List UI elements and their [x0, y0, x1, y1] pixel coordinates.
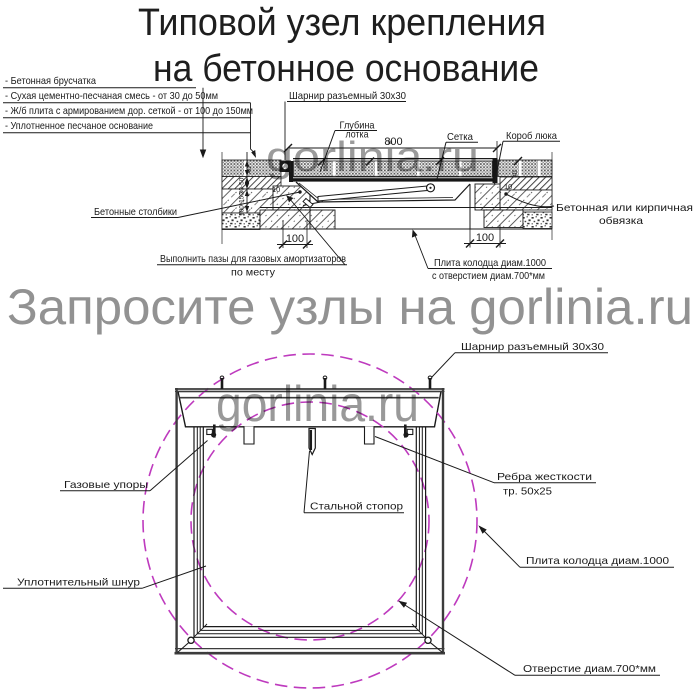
svg-text:Запросите узлы на gorlinia.ru: Запросите узлы на gorlinia.ru: [7, 279, 693, 335]
svg-text:10: 10: [272, 185, 280, 194]
svg-text:100: 100: [286, 233, 304, 245]
svg-text:10: 10: [504, 182, 512, 191]
svg-text:Плита колодца диам.1000: Плита колодца диам.1000: [526, 555, 669, 567]
svg-text:Ребра жесткости: Ребра жесткости: [497, 471, 592, 483]
svg-text:gorlinia.ru: gorlinia.ru: [266, 133, 479, 180]
svg-text:- Уплотненное песчаное основан: - Уплотненное песчаное основание: [5, 120, 153, 132]
svg-text:Уплотнительный шнур: Уплотнительный шнур: [17, 577, 140, 589]
svg-text:Короб люка: Короб люка: [506, 130, 557, 142]
svg-text:обвязка: обвязка: [599, 215, 643, 227]
svg-text:Газовые упоры: Газовые упоры: [64, 479, 148, 491]
svg-text:Стальной стопор: Стальной стопор: [310, 501, 403, 513]
svg-text:Шарнир разъемный 30х30: Шарнир разъемный 30х30: [289, 90, 406, 102]
svg-text:Бетонные столбики: Бетонные столбики: [94, 206, 177, 218]
svg-text:40: 40: [512, 170, 519, 178]
svg-text:Типовой узел крепления: Типовой узел крепления: [138, 2, 546, 44]
svg-text:gorlinia.ru: gorlinia.ru: [216, 376, 419, 432]
svg-text:Бетонная или кирпичная: Бетонная или кирпичная: [556, 202, 693, 214]
svg-text:- Сухая цементно-песчаная смес: - Сухая цементно-песчаная смесь - от 30 …: [5, 90, 218, 102]
svg-text:30-50: 30-50: [239, 177, 246, 194]
svg-text:Выполнить пазы для газовых амо: Выполнить пазы для газовых амортизаторов: [160, 253, 346, 265]
svg-text:на бетонное основание: на бетонное основание: [153, 48, 539, 90]
svg-text:Отверстие диам.700*мм: Отверстие диам.700*мм: [523, 663, 656, 675]
svg-text:тр. 50х25: тр. 50х25: [503, 486, 552, 498]
svg-text:100: 100: [476, 232, 494, 244]
svg-text:Плита колодца диам.1000: Плита колодца диам.1000: [434, 257, 546, 269]
svg-text:- Бетонная брусчатка: - Бетонная брусчатка: [5, 75, 96, 87]
svg-text:Шарнир разъемный 30х30: Шарнир разъемный 30х30: [461, 341, 604, 353]
svg-text:40: 40: [246, 166, 253, 174]
svg-text:по месту: по месту: [231, 267, 276, 279]
svg-text:- Ж/б плита с армированием дор: - Ж/б плита с армированием дор. сеткой -…: [5, 105, 253, 117]
